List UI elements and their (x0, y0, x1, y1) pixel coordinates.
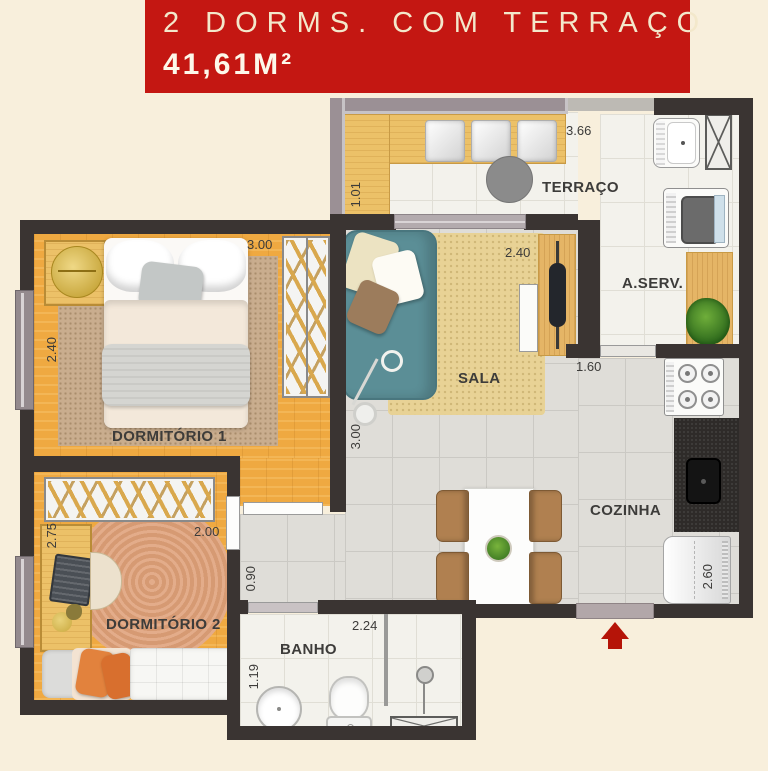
laundry-tank (653, 118, 700, 168)
wall-dorm1-sala (330, 220, 346, 512)
dorm2-label: DORMITÓRIO 2 (106, 616, 221, 633)
banho-dim-width: 2.24 (352, 618, 377, 633)
cozinha-dim-width: 1.60 (576, 359, 601, 374)
duct-shaft (705, 114, 732, 170)
washer-lid-strip (714, 195, 725, 243)
sliding-door-track (395, 221, 525, 223)
wall-dorm2-bottom (20, 700, 240, 715)
terrace-cushion (425, 120, 465, 162)
dorm1-bed (104, 238, 248, 428)
dining-table (464, 488, 534, 608)
dorm1-dim-depth: 2.40 (44, 337, 59, 362)
entrance-arrow-stem (608, 638, 622, 649)
sink-drain (277, 707, 281, 711)
dining-chair (436, 552, 469, 604)
sala-dim-depth: 3.00 (348, 424, 363, 449)
stove (664, 358, 724, 416)
dorm2-dim-width: 2.00 (194, 524, 219, 539)
terrace-sliding-door (394, 214, 526, 229)
terrace-round-table (486, 156, 533, 203)
potted-plant (686, 298, 730, 345)
wall-sala-aserv (578, 220, 600, 358)
wall-dorm1-dorm2 (20, 456, 240, 472)
parapet-segment (568, 98, 656, 111)
entry-door (576, 603, 654, 619)
dining-chair (529, 490, 562, 542)
tank-drain (681, 141, 685, 145)
shower-stem (423, 682, 425, 714)
wall-banho-top-right (318, 600, 476, 614)
dining-chair (529, 552, 562, 604)
terraco-dim-width: 3.66 (566, 123, 591, 138)
dorm1-door (243, 502, 323, 515)
washer-controls (666, 193, 676, 243)
dorm2-hangers (48, 481, 211, 518)
cozinha-dim-depth: 2.60 (700, 564, 715, 589)
dorm2-window (15, 556, 34, 648)
wall-hall-left-upper (227, 456, 240, 498)
floor-lamp-base (353, 402, 377, 426)
shower-partition (384, 614, 388, 706)
plan-title: 2 DORMS. COM TERRAÇO (163, 7, 708, 40)
terrace-railing-left (330, 98, 345, 224)
terrace-cushion (517, 120, 557, 162)
terrace-railing-top (330, 98, 568, 114)
stove-burner (701, 390, 720, 409)
fridge-coils (722, 541, 728, 599)
shower-head (416, 666, 434, 684)
hall-floor (240, 514, 345, 606)
banho-label: BANHO (280, 641, 337, 658)
dorm2-wardrobe (44, 477, 215, 522)
dorm2-door (226, 496, 240, 550)
cozinha-label: COZINHA (590, 502, 661, 519)
laptop (49, 553, 95, 606)
hall-dim-width: 0.90 (243, 566, 258, 591)
wall-right (739, 98, 753, 618)
dorm1-wardrobe (282, 236, 330, 398)
kitchen-counter (674, 418, 739, 532)
kitchen-sink-drain (701, 479, 706, 484)
banho-door (248, 602, 318, 613)
dining-chair (436, 490, 469, 542)
wall-terrace-sala-right (524, 214, 578, 230)
table-centerpiece-plant (485, 535, 512, 562)
stove-burner (678, 390, 697, 409)
wall-cozinha-bottom-right (654, 604, 753, 618)
stove-knobs (666, 362, 674, 412)
dorm2-bed (42, 648, 234, 700)
wall-dorm1-top (20, 220, 345, 234)
aserv-label: A.SERV. (622, 275, 683, 292)
fridge-door-split (694, 541, 695, 599)
terraco-dim-depth: 1.01 (348, 182, 363, 207)
aserv-door (600, 345, 656, 357)
dorm1-dim-width: 3.00 (247, 237, 272, 252)
tank-ribs (656, 121, 665, 165)
washing-machine (663, 188, 729, 248)
kitchen-sink (686, 458, 721, 504)
dorm1-window (15, 290, 34, 410)
banho-dim-depth: 1.19 (246, 664, 261, 689)
wall-banho-right (462, 600, 476, 740)
dorm1-throw-blanket (102, 344, 250, 406)
stove-burner (701, 364, 720, 383)
dorm1-door-recess-floor (240, 458, 330, 506)
sala-dim-width: 2.40 (505, 245, 530, 260)
desk-plant (66, 604, 82, 620)
wardrobe-divider (306, 238, 308, 396)
wall-aserv-cozinha-right (656, 344, 753, 358)
tv-panel (538, 234, 576, 356)
wall-banho-bottom (227, 726, 476, 740)
dorm2-dim-depth: 2.75 (44, 523, 59, 548)
terraco-label: TERRAÇO (542, 179, 619, 196)
entrance-arrow (601, 622, 629, 639)
dorm1-label: DORMITÓRIO 1 (112, 428, 227, 445)
title-banner: 2 DORMS. COM TERRAÇO 41,61M² (145, 0, 690, 93)
wall-banho-top-left (227, 600, 248, 614)
stove-burner (678, 364, 697, 383)
plan-area: 41,61M² (163, 48, 294, 82)
floor-lamp-shade (381, 350, 403, 372)
toilet-lid (329, 676, 369, 720)
sala-label: SALA (458, 370, 500, 387)
wall-aserv-cozinha-left (566, 344, 600, 358)
fridge (663, 536, 731, 604)
wall-cozinha-bottom-left (462, 604, 576, 618)
tv-screen (549, 263, 566, 327)
dorm1-lamp (51, 246, 103, 298)
sala-shelf (519, 284, 538, 352)
dorm2-duvet (130, 648, 234, 700)
dorm1-lamp-arm (58, 270, 96, 272)
